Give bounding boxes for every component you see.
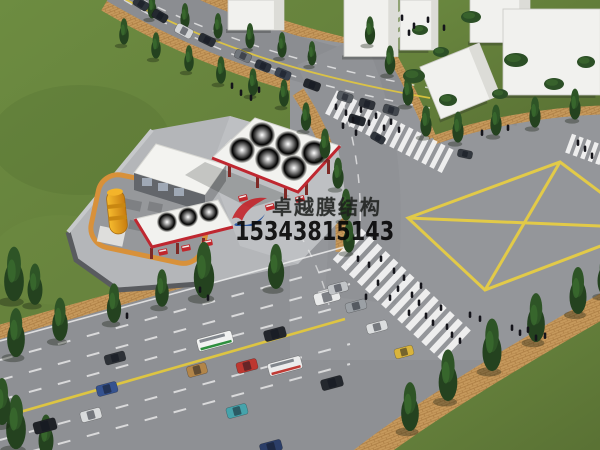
pedestrian — [479, 316, 482, 323]
bush — [577, 56, 595, 68]
scene-rendering — [0, 0, 600, 450]
pedestrian — [199, 287, 202, 294]
pedestrian — [577, 140, 580, 147]
bush — [403, 69, 425, 83]
pedestrian — [250, 95, 253, 102]
bush — [439, 94, 457, 106]
bush — [492, 89, 508, 99]
pedestrian — [383, 125, 386, 132]
pedestrian — [443, 25, 446, 32]
pedestrian — [481, 130, 484, 137]
pedestrian — [258, 87, 261, 94]
pedestrian — [591, 153, 594, 160]
architectural-rendering: 卓越膜结构 15343815143 — [0, 0, 600, 450]
bush — [544, 78, 564, 90]
pedestrian — [427, 17, 430, 24]
pedestrian — [403, 275, 406, 282]
pedestrian — [375, 113, 378, 120]
bush — [461, 11, 481, 23]
pedestrian — [511, 325, 514, 332]
pedestrian — [240, 90, 243, 97]
pedestrian — [411, 292, 414, 299]
pedestrian — [398, 127, 401, 134]
pedestrian — [352, 117, 355, 124]
pedestrian — [126, 313, 129, 320]
pedestrian — [231, 83, 234, 90]
pedestrian — [527, 327, 530, 334]
pedestrian — [207, 295, 210, 302]
pedestrian — [397, 286, 400, 293]
building — [226, 0, 284, 33]
pedestrian — [440, 305, 443, 312]
pedestrian — [365, 294, 368, 301]
pedestrian — [451, 332, 454, 339]
pedestrian — [368, 120, 371, 127]
pedestrian — [425, 313, 428, 320]
pedestrian — [459, 338, 462, 345]
pedestrian — [401, 15, 404, 22]
pedestrian — [357, 256, 360, 263]
pedestrian — [413, 23, 416, 30]
pedestrian — [335, 104, 338, 111]
pedestrian — [507, 125, 510, 132]
pedestrian — [393, 268, 396, 275]
pedestrian — [535, 335, 538, 342]
pedestrian — [342, 123, 345, 130]
pedestrian — [368, 262, 371, 269]
pedestrian — [389, 295, 392, 302]
pedestrian — [584, 146, 587, 153]
pedestrian — [408, 30, 411, 37]
pedestrian — [380, 256, 383, 263]
pedestrian — [408, 310, 411, 317]
pedestrian — [446, 324, 449, 331]
bush — [433, 47, 449, 57]
pedestrian — [420, 283, 423, 290]
pedestrian — [418, 300, 421, 307]
pedestrian — [390, 119, 393, 126]
pedestrian — [469, 312, 472, 319]
pedestrian — [355, 130, 358, 137]
pedestrian — [377, 280, 380, 287]
pedestrian — [432, 320, 435, 327]
pedestrian — [360, 107, 363, 114]
pedestrian — [544, 333, 547, 340]
pedestrian — [345, 110, 348, 117]
pedestrian — [519, 330, 522, 337]
bush — [504, 53, 528, 67]
